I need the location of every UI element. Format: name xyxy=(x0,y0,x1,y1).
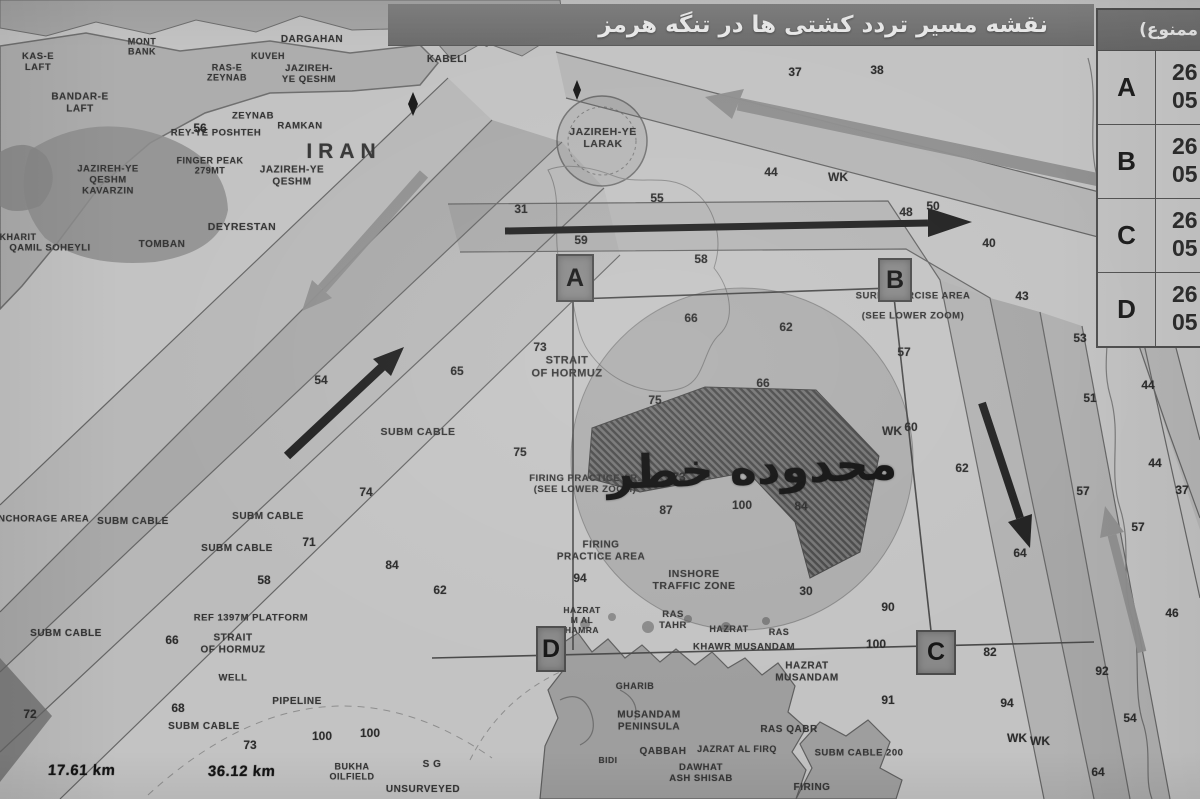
photo-tint-overlay xyxy=(0,0,1200,799)
nautical-chart-photo: MONT BANKKAS-E LAFTDARGAHANKABOLIQESHMKA… xyxy=(0,0,1200,799)
